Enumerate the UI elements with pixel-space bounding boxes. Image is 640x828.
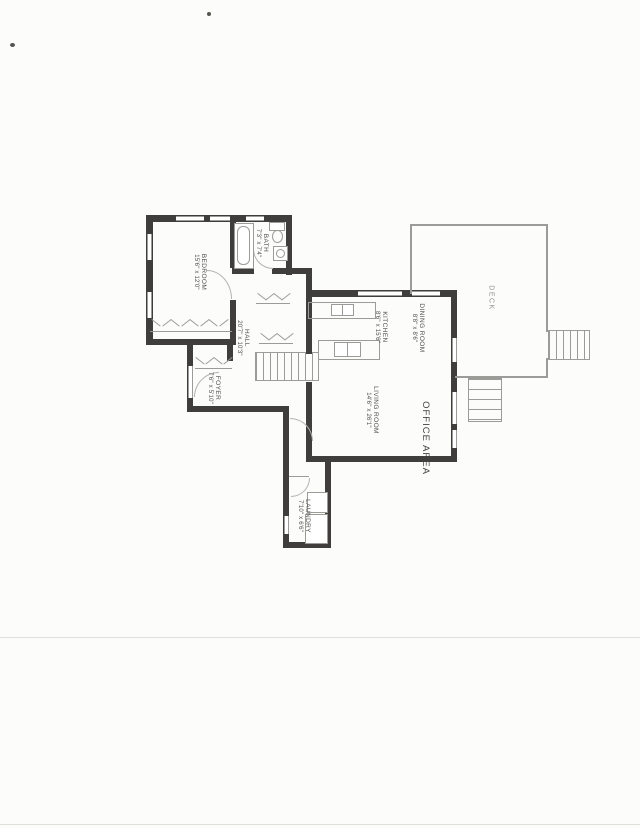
room-name: OFFICE AREA	[419, 401, 431, 475]
room-label-deck: DECK	[486, 285, 495, 310]
room-name: BEDROOM	[199, 254, 207, 290]
scan-speck	[10, 43, 15, 47]
window	[452, 392, 457, 424]
room-dims: 8'8" x 8'6"	[409, 303, 417, 352]
range-icon	[347, 342, 361, 357]
window	[147, 234, 152, 260]
scan-line-artifact	[0, 824, 640, 825]
room-name: HALL	[242, 320, 250, 356]
room-name: DINING ROOM	[417, 303, 425, 352]
closet-bifold-icon	[190, 318, 209, 328]
window	[452, 338, 457, 362]
window	[412, 291, 440, 296]
closet-front-line	[150, 331, 232, 332]
room-label-foyer: FOYER 7'6" x 5'10"	[205, 372, 221, 404]
closet-bifold-icon	[261, 332, 277, 342]
bathtub-inner	[237, 226, 250, 265]
closet-bifold-icon	[209, 318, 228, 328]
closet-bifold-icon	[214, 356, 232, 366]
room-name: LIVING ROOM	[371, 386, 379, 434]
room-label-bath: BATH 7'3" x 7'4"	[253, 229, 269, 257]
closet-bifold-icon	[171, 318, 190, 328]
room-label-hall: HALL 20'7" x 10'3"	[234, 320, 250, 356]
toilet-bowl	[272, 230, 283, 243]
room-label-dining-room: DINING ROOM 8'8" x 8'6"	[409, 303, 425, 352]
room-label-laundry: LAUNDRY 7'10" x 6'6"	[295, 499, 311, 533]
door-swing-arc	[207, 270, 232, 299]
closet-bifold-icon	[258, 292, 274, 302]
room-name: LAUNDRY	[303, 499, 311, 533]
room-dims: 7'6" x 5'10"	[205, 372, 213, 404]
closet-bifold-icon	[196, 356, 214, 366]
scan-speck	[207, 12, 211, 16]
range-icon	[334, 342, 348, 357]
room-label-kitchen: KITCHEN 8'6" x 15'6"	[372, 311, 388, 343]
deck-edge	[546, 358, 548, 378]
closet-front-line	[259, 343, 293, 344]
room-name: FOYER	[213, 372, 221, 404]
window	[452, 430, 457, 448]
floor-plan-scan: BEDROOM 15'6" x 12'0" BATH 7'3" x 7'4" H…	[0, 0, 640, 828]
room-dims: 15'6" x 12'0"	[191, 254, 199, 290]
window	[246, 216, 264, 221]
deck-stairs-down	[468, 378, 502, 422]
room-dims: 7'3" x 7'4"	[253, 229, 261, 257]
closet-bifold-icon	[152, 318, 171, 328]
room-label-living-room: LIVING ROOM 14'6" x 26'1"	[363, 386, 379, 434]
wall-segment	[187, 406, 289, 412]
closet-front-line	[195, 368, 232, 369]
room-dims: 8'6" x 15'6"	[372, 311, 380, 343]
scan-line-artifact	[0, 637, 640, 638]
deck-edge	[546, 224, 548, 332]
closet-bifold-icon	[274, 292, 290, 302]
room-dims: 14'6" x 26'1"	[363, 386, 371, 434]
room-dims: 7'10" x 6'6"	[295, 499, 303, 533]
deck-steps	[548, 330, 590, 360]
staircase	[255, 352, 319, 381]
window	[358, 291, 402, 296]
wall-segment	[306, 382, 312, 456]
closet-front-line	[256, 303, 290, 304]
partition-line	[289, 476, 309, 477]
front-door-sidelite	[188, 366, 193, 398]
deck-edge	[410, 224, 548, 226]
window	[147, 292, 152, 318]
room-name: BATH	[261, 229, 269, 257]
window	[176, 216, 204, 221]
room-name: KITCHEN	[380, 311, 388, 343]
room-name: DECK	[486, 285, 495, 310]
closet-bifold-icon	[277, 332, 293, 342]
deck-edge	[410, 224, 412, 294]
wall-segment	[286, 215, 292, 275]
window	[284, 516, 289, 534]
room-label-bedroom: BEDROOM 15'6" x 12'0"	[191, 254, 207, 290]
room-dims: 20'7" x 10'3"	[234, 320, 242, 356]
kitchen-sink-icon	[342, 304, 354, 316]
room-label-office-area: OFFICE AREA	[419, 401, 431, 475]
sink-basin	[276, 249, 285, 258]
